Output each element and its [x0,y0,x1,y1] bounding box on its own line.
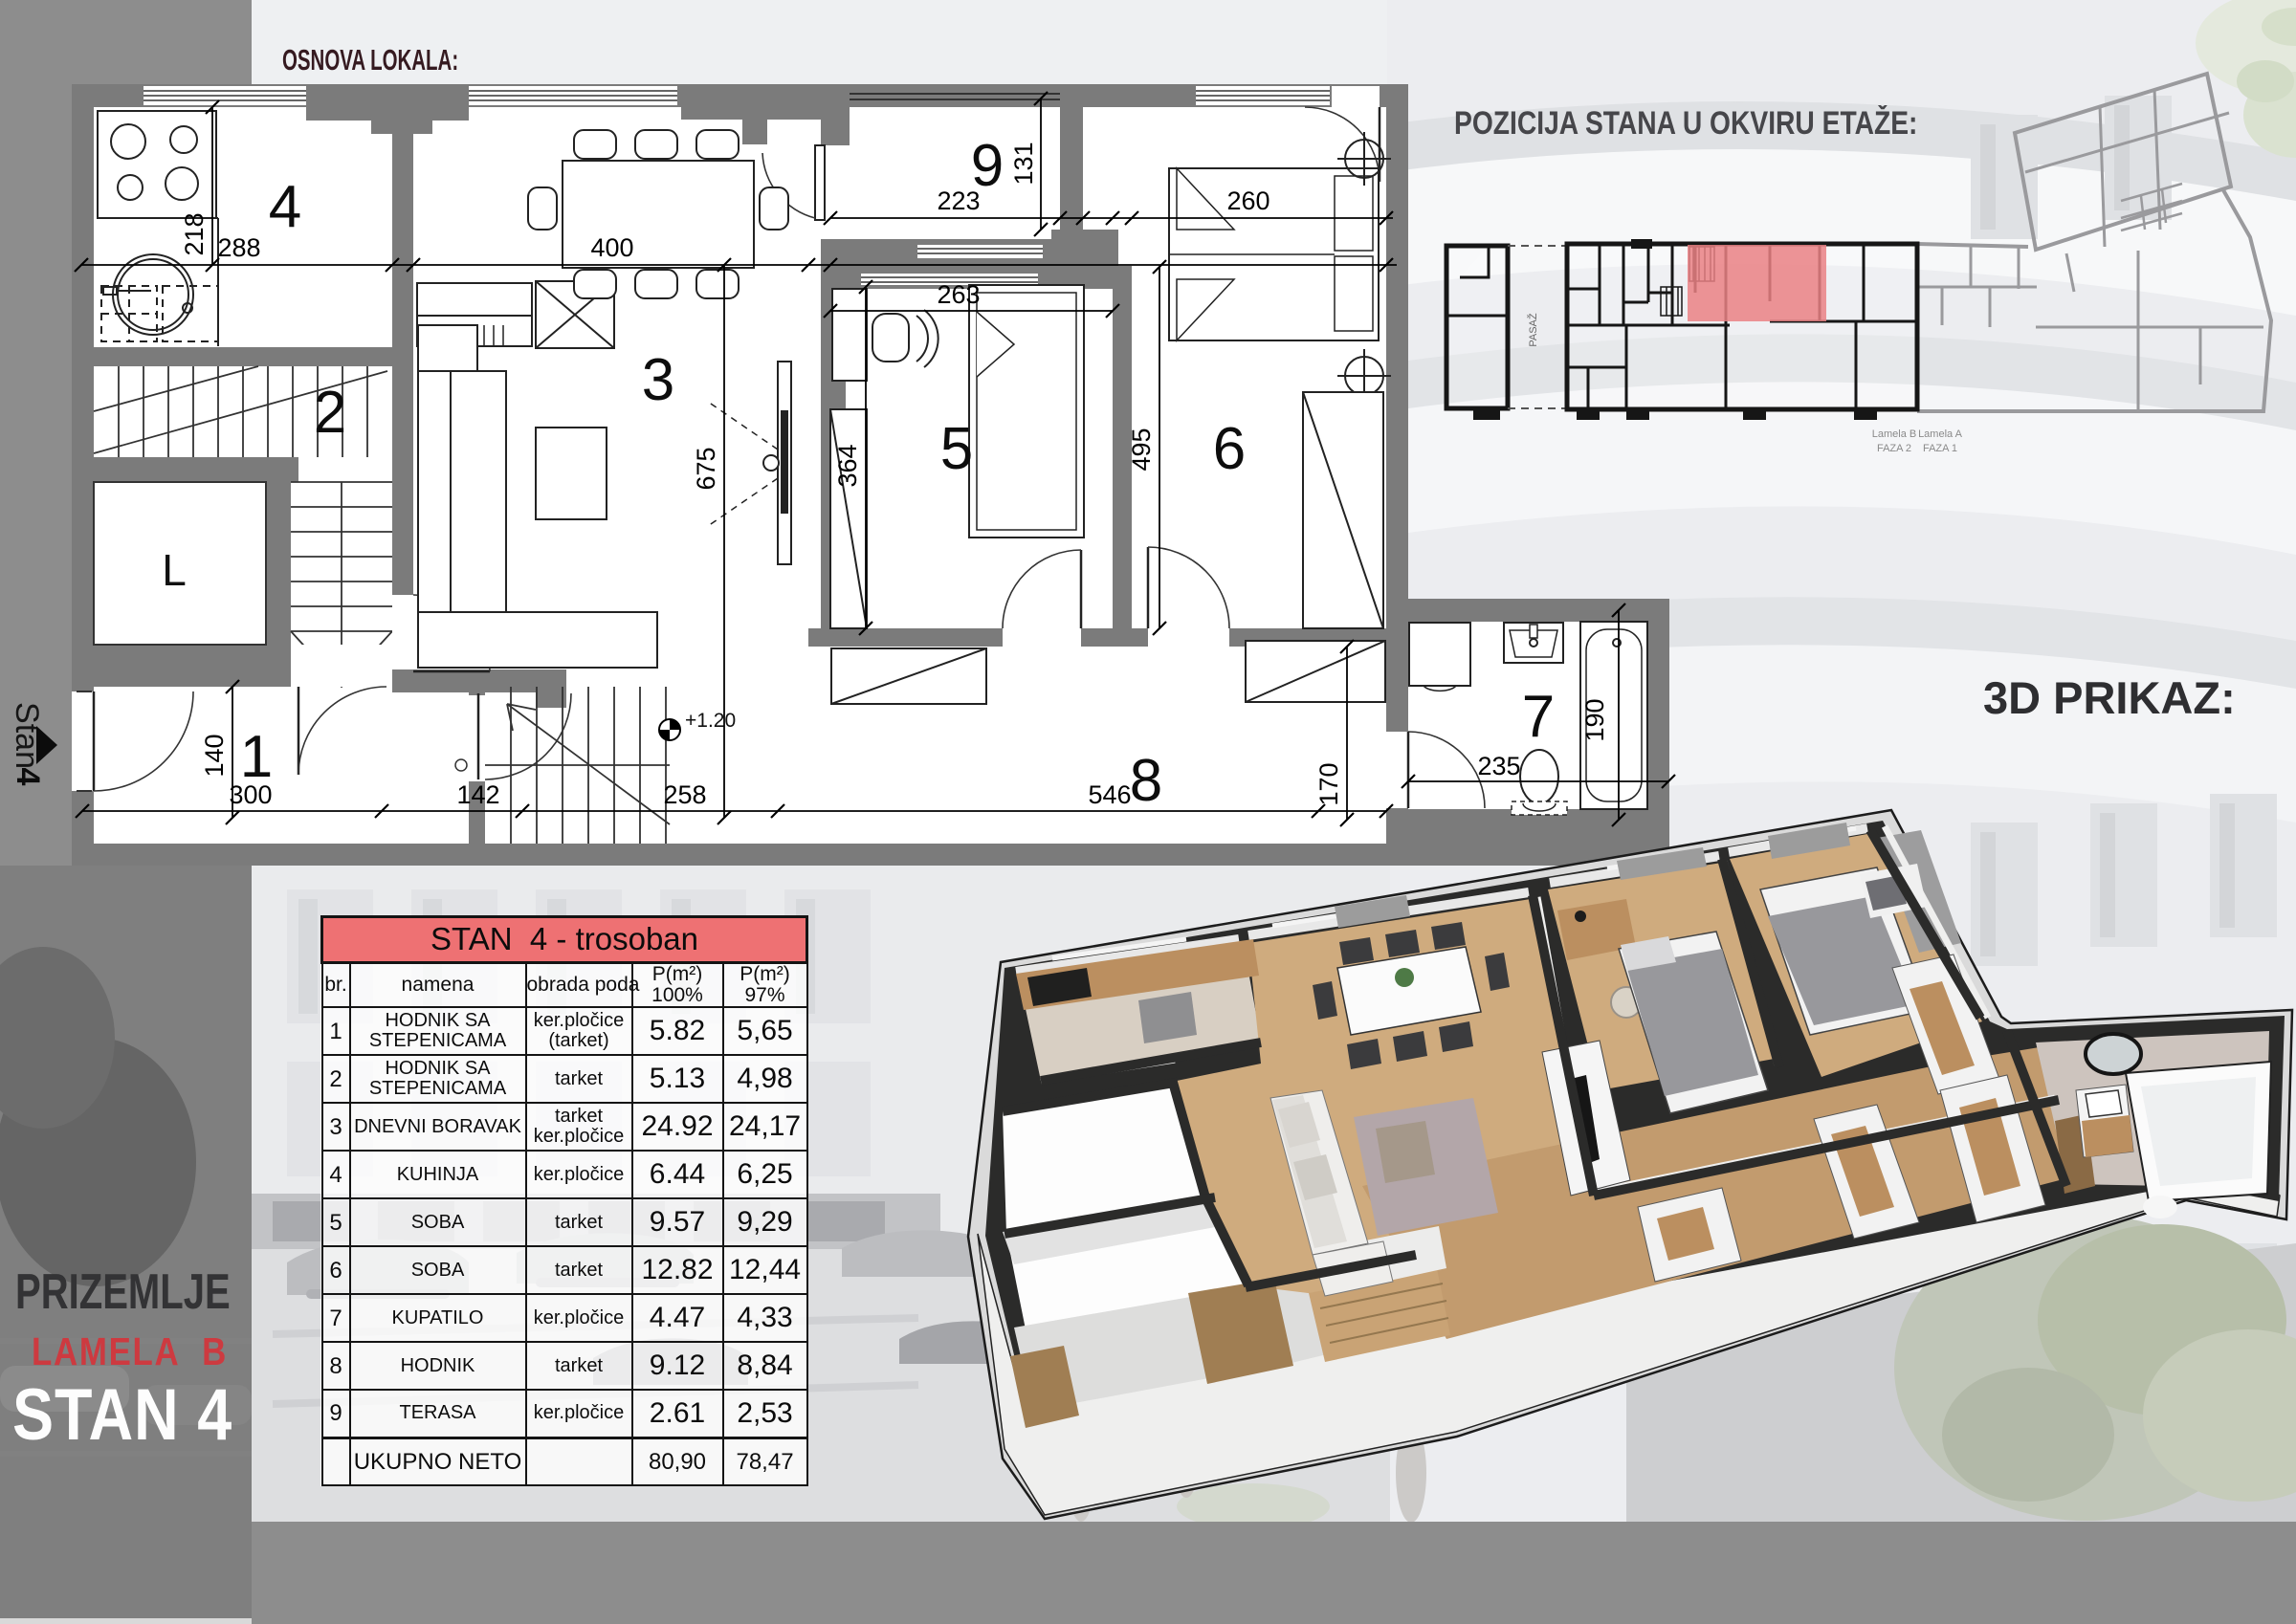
svg-text:Lamela B: Lamela B [1872,428,1916,440]
svg-text:7: 7 [1522,684,1555,750]
svg-text:260: 260 [1226,187,1269,215]
svg-text:364: 364 [833,444,862,487]
svg-text:258: 258 [663,780,706,809]
svg-text:FAZA 2: FAZA 2 [1877,443,1911,454]
svg-text:300: 300 [229,780,272,809]
svg-text:FAZA 1: FAZA 1 [1923,443,1957,454]
svg-text:675: 675 [692,447,720,490]
svg-text:546: 546 [1088,780,1131,809]
svg-text:263: 263 [937,280,980,309]
svg-text:190: 190 [1580,698,1609,741]
svg-text:Lamela A: Lamela A [1918,428,1963,440]
svg-text:288: 288 [217,233,260,262]
svg-text:400: 400 [590,233,633,262]
svg-text:L: L [162,545,187,595]
svg-text:4: 4 [269,174,301,240]
svg-text:170: 170 [1314,762,1343,805]
svg-text:3: 3 [642,347,674,413]
svg-text:235: 235 [1477,752,1520,780]
svg-text:PASAŽ: PASAŽ [1527,313,1539,347]
svg-text:140: 140 [200,734,229,777]
svg-text:131: 131 [1009,142,1038,185]
svg-text:218: 218 [180,212,209,255]
svg-text:495: 495 [1127,428,1156,471]
svg-text:2: 2 [314,380,346,446]
svg-text:4: 4 [10,768,46,786]
svg-text:5: 5 [940,416,973,482]
svg-text:142: 142 [456,780,499,809]
svg-text:6: 6 [1213,416,1246,482]
svg-text:223: 223 [937,187,980,215]
svg-text:+1.20: +1.20 [685,710,736,732]
svg-text:8: 8 [1130,748,1162,814]
